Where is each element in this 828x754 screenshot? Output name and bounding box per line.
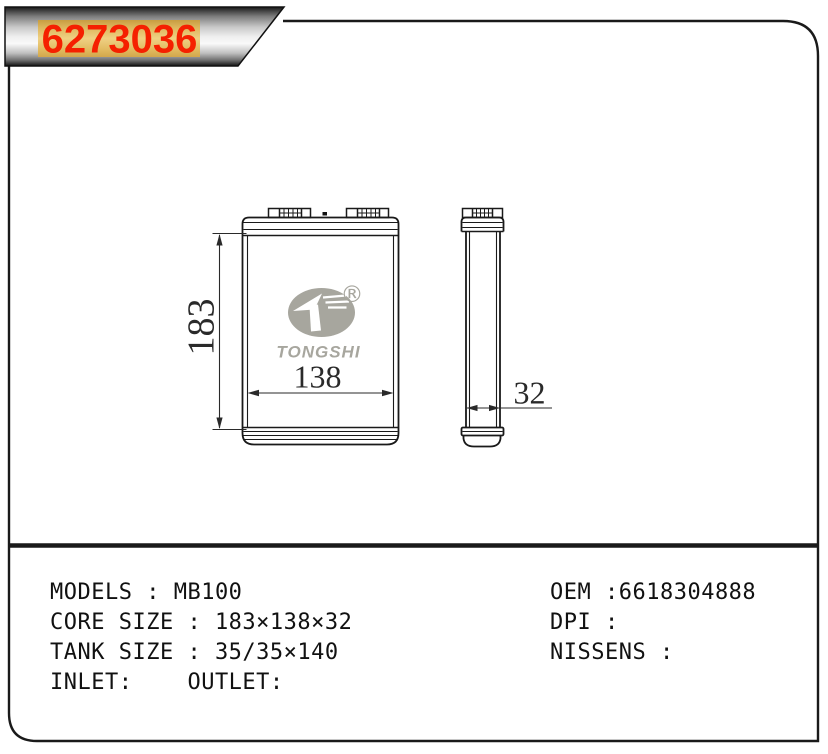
part-number-banner: 6273036 — [5, 7, 284, 66]
dimension-height: 183 — [181, 234, 247, 430]
spec-models: MODELS : MB100 — [50, 578, 352, 608]
dimension-label-width: 138 — [294, 359, 342, 395]
side-bottom-cap — [464, 436, 501, 447]
dimension-label-depth: 32 — [514, 375, 546, 411]
spec-column-right: OEM :6618304888 DPI : NISSENS : — [550, 578, 756, 668]
brand-name: TONGSHI — [276, 343, 360, 362]
side-view — [462, 209, 504, 447]
tongshi-logo: ® TONGSHI — [276, 282, 363, 362]
registered-trademark: ® — [341, 282, 364, 308]
part-number: 6273036 — [42, 18, 198, 62]
side-bottom-flange — [462, 428, 504, 436]
side-top-collar — [462, 218, 504, 232]
spec-dpi: DPI : — [550, 608, 756, 638]
spec-nissens: NISSENS : — [550, 638, 756, 668]
spec-tank-size: TANK SIZE : 35/35×140 — [50, 638, 352, 668]
spec-oem: OEM :6618304888 — [550, 578, 756, 608]
datasheet-page: 6273036 — [0, 0, 828, 754]
center-tab — [323, 212, 328, 216]
bottom-tank — [243, 428, 399, 445]
dimension-width: 138 — [248, 359, 394, 397]
spec-column-left: MODELS : MB100 CORE SIZE : 183×138×32 TA… — [50, 578, 352, 698]
inlet-connector-left — [269, 209, 311, 218]
dimension-label-height: 183 — [181, 299, 223, 356]
side-connector — [463, 209, 503, 218]
inlet-connector-right — [347, 209, 389, 218]
spec-core-size: CORE SIZE : 183×138×32 — [50, 608, 352, 638]
side-body — [466, 232, 500, 428]
spec-inlet-outlet: INLET: OUTLET: — [50, 668, 352, 698]
top-tank — [243, 218, 399, 236]
dimension-depth: 32 — [467, 375, 553, 412]
